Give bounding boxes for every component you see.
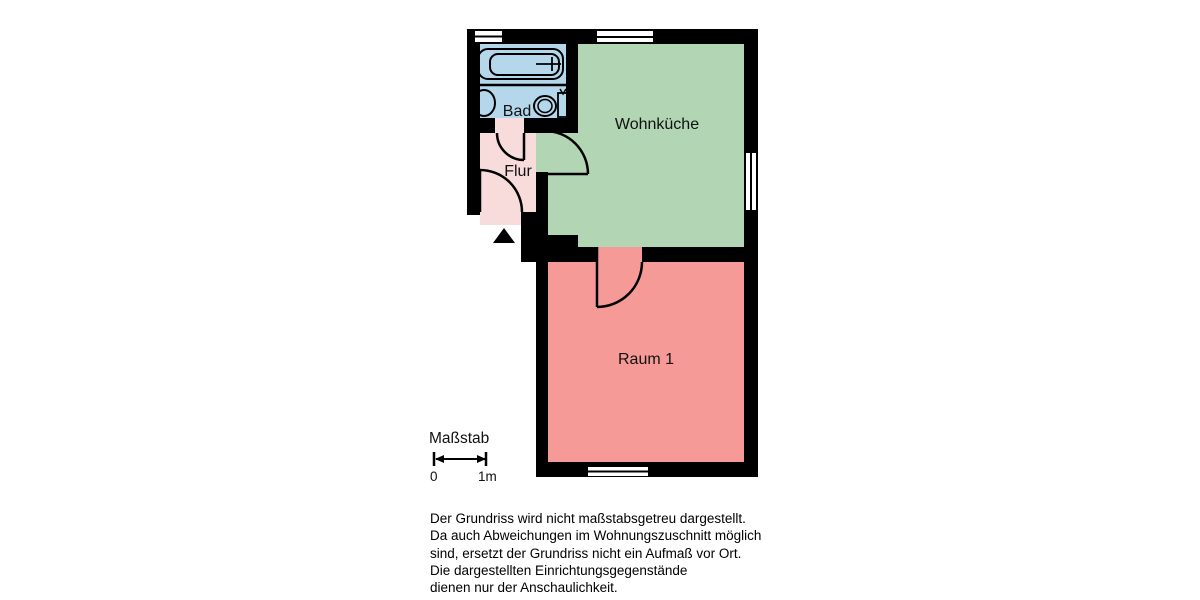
scale-arrowhead-right-icon [477, 455, 486, 463]
window-bad-top [475, 31, 502, 42]
window-raum1-bottom [588, 467, 648, 476]
scale-max-label: 1m [478, 469, 497, 484]
disclaimer-line: sind, ersetzt der Grundriss nicht ein Au… [430, 545, 761, 562]
window-wohnkueche-right [746, 153, 756, 210]
wall-entrance-corner [521, 212, 548, 262]
scale-bar: Maßstab 0 1m [429, 430, 497, 484]
door-gap-wohnkueche-raum1 [597, 247, 642, 262]
room-flur-entrance-strip [480, 212, 521, 225]
door-gap-bad [495, 118, 524, 133]
wall-right [744, 29, 758, 477]
room-label-bad: Bad [503, 103, 531, 120]
scale-min-label: 0 [430, 469, 438, 484]
disclaimer-line: Die dargestellten Einrichtungsgegenständ… [430, 562, 761, 579]
entrance-arrow-icon [493, 228, 515, 243]
door-gap-flur-wohnkueche [536, 133, 548, 172]
room-label-raum1: Raum 1 [618, 351, 674, 368]
disclaimer-line: Da auch Abweichungen im Wohnungszuschnit… [430, 527, 761, 544]
room-wohnkueche [578, 44, 744, 247]
disclaimer-line: Der Grundriss wird nicht maßstabsgetreu … [430, 510, 761, 527]
floorplan-page: Bad Flur Wohnküche Raum 1 Maßstab 0 1m D… [0, 0, 1200, 600]
room-wohnkueche-left-part [548, 133, 578, 235]
scale-title: Maßstab [429, 430, 489, 447]
scale-arrowhead-left-icon [435, 455, 444, 463]
disclaimer-line: dienen nur der Anschaulichkeit. [430, 579, 761, 596]
room-label-flur: Flur [504, 163, 532, 180]
room-label-wohnkueche: Wohnküche [615, 116, 699, 133]
window-wohnkueche-top [597, 31, 653, 42]
disclaimer-text: Der Grundriss wird nicht maßstabsgetreu … [430, 510, 761, 596]
